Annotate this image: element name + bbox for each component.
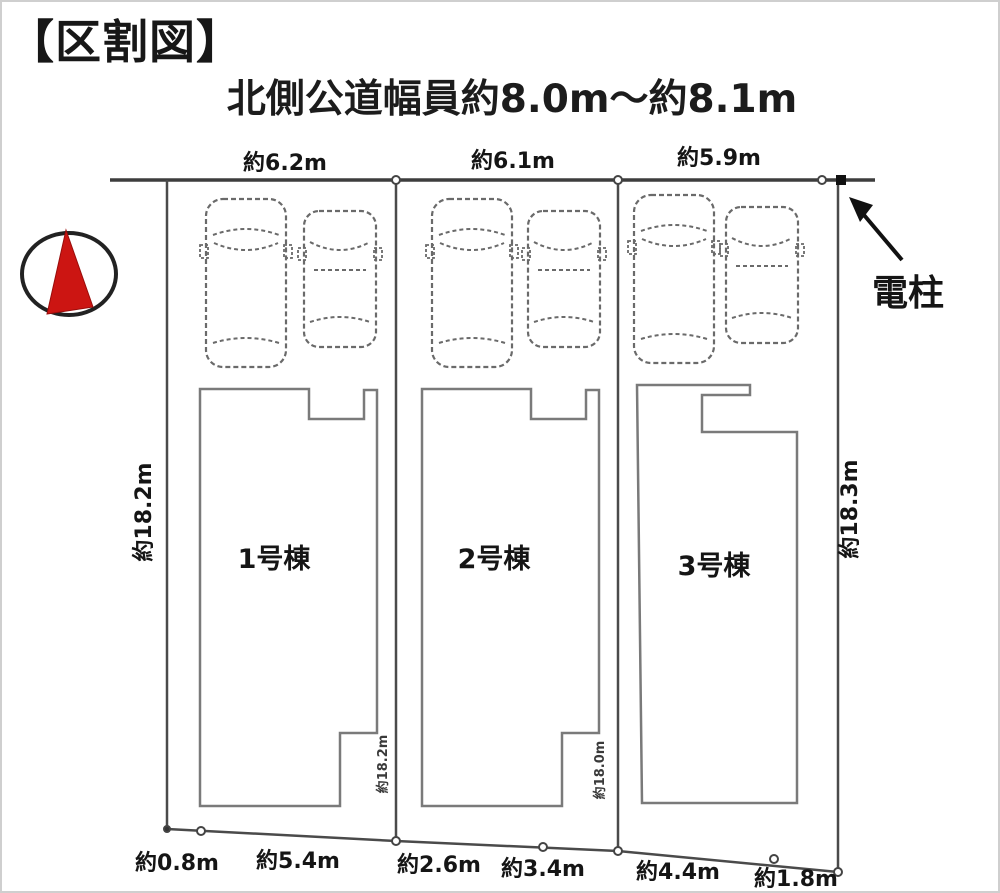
car-icon bbox=[426, 199, 518, 367]
lot-1-name: 1号棟 bbox=[238, 544, 312, 575]
survey-tick-marks bbox=[164, 176, 842, 876]
site-plan-canvas: 約6.2m 約6.1m 約5.9m bbox=[2, 2, 1000, 893]
bottom-dim-3: 約3.4m bbox=[501, 856, 585, 882]
building-1-outline bbox=[200, 389, 377, 806]
arrow-icon bbox=[849, 197, 873, 222]
utility-pole-marker bbox=[836, 175, 846, 185]
car-icon bbox=[720, 207, 804, 343]
lot-boundary-lines bbox=[167, 180, 838, 872]
parked-cars bbox=[200, 195, 804, 367]
utility-pole-label: 電柱 bbox=[872, 273, 944, 314]
plot-division-diagram: 【区割図】 北側公道幅員約8.0m～約8.1m bbox=[0, 0, 1000, 893]
building-3-outline bbox=[637, 385, 797, 803]
bottom-dim-2: 約2.6m bbox=[397, 852, 481, 878]
bottom-dim-0: 約0.8m bbox=[135, 850, 219, 876]
lot-3-name: 3号棟 bbox=[678, 551, 752, 582]
depth-dim-right: 約18.3m bbox=[837, 459, 863, 558]
frontage-dim-lot1: 約6.2m bbox=[243, 150, 327, 176]
car-icon bbox=[628, 195, 720, 363]
depth-dim-left: 約18.2m bbox=[131, 462, 157, 561]
building-footprints bbox=[200, 385, 797, 806]
bottom-dim-4: 約4.4m bbox=[636, 859, 720, 885]
frontage-dim-lot2: 約6.1m bbox=[471, 148, 555, 174]
compass-north-icon bbox=[22, 230, 116, 315]
utility-pole-callout: 電柱 bbox=[849, 197, 944, 314]
car-icon bbox=[200, 199, 292, 367]
depth-dim-inner-left: 約18.2m bbox=[375, 735, 391, 794]
frontage-dim-lot3: 約5.9m bbox=[677, 145, 761, 171]
lot-2-name: 2号棟 bbox=[458, 544, 532, 575]
car-icon bbox=[522, 211, 606, 347]
car-icon bbox=[298, 211, 382, 347]
bottom-dim-5: 約1.8m bbox=[754, 866, 838, 892]
bottom-dim-1: 約5.4m bbox=[256, 848, 340, 874]
depth-dim-inner-right: 約18.0m bbox=[592, 741, 608, 800]
building-2-outline bbox=[422, 389, 599, 806]
